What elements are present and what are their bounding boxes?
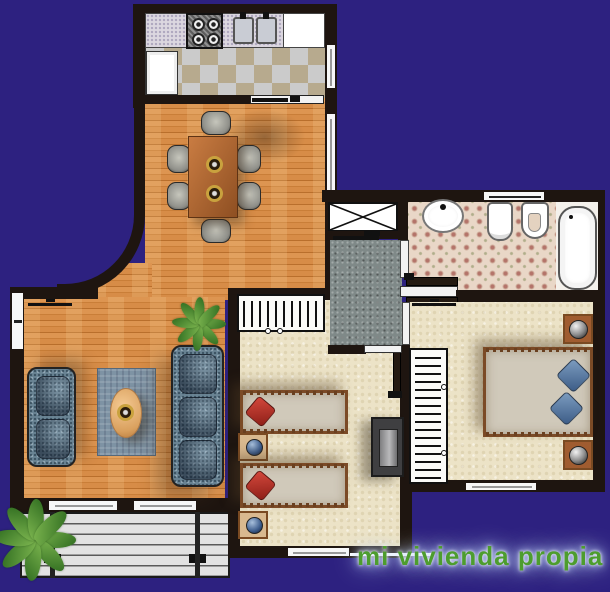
bathroom-window bbox=[483, 191, 545, 201]
stove bbox=[186, 13, 223, 49]
kitchen-sink-basin bbox=[256, 17, 277, 44]
plate-icon bbox=[206, 156, 223, 173]
radiator-tick bbox=[46, 299, 55, 302]
nightstand bbox=[563, 440, 593, 470]
nightstand bbox=[238, 433, 268, 461]
small-bedroom-wardrobe bbox=[237, 294, 325, 332]
burner-icon bbox=[192, 33, 205, 46]
single-bed bbox=[240, 390, 348, 434]
railing-handle bbox=[200, 554, 206, 563]
sofa-cushion bbox=[36, 376, 70, 416]
dining-chair bbox=[237, 145, 261, 173]
duct-closet bbox=[328, 202, 398, 232]
plate-icon bbox=[206, 185, 223, 202]
lamp-icon bbox=[246, 517, 263, 534]
railing-post bbox=[195, 512, 200, 578]
door-handle bbox=[404, 273, 414, 280]
wardrobe-shelves bbox=[415, 355, 441, 479]
bathtub bbox=[558, 206, 597, 290]
kitchen-bottom-wall bbox=[133, 95, 251, 104]
wardrobe-knob bbox=[441, 450, 447, 456]
dining-chair bbox=[201, 111, 231, 135]
radiator-tick bbox=[430, 299, 439, 302]
x-cross-icon bbox=[330, 204, 396, 230]
coffee-table bbox=[110, 388, 142, 438]
bidet-bowl bbox=[528, 213, 541, 232]
hall-floor bbox=[330, 240, 402, 347]
nightstand bbox=[563, 314, 593, 344]
three-seat-sofa bbox=[171, 345, 224, 487]
sofa-cushion bbox=[179, 440, 217, 480]
single-bed bbox=[240, 463, 348, 508]
dining-chair bbox=[201, 219, 231, 243]
centerpiece-icon bbox=[117, 404, 134, 421]
red-pillow bbox=[244, 395, 276, 427]
burner-icon bbox=[192, 18, 205, 31]
tv-cabinet bbox=[371, 417, 404, 477]
kitchen-window bbox=[326, 44, 336, 89]
railing-handle bbox=[189, 554, 195, 563]
balcony-plant bbox=[0, 496, 70, 568]
radiator-mark bbox=[412, 303, 456, 306]
doorway-threshold bbox=[400, 286, 458, 297]
sofa-cushion bbox=[36, 419, 70, 459]
duct-right-wall bbox=[398, 202, 408, 240]
watermark-text: mi vivienda propia bbox=[357, 541, 603, 572]
dining-chair bbox=[237, 182, 261, 210]
toilet bbox=[487, 202, 513, 241]
small-bedroom-door bbox=[393, 347, 401, 397]
living-plant bbox=[176, 296, 222, 342]
kitchen-sink-basin bbox=[233, 17, 254, 44]
radiator-mark bbox=[28, 303, 72, 306]
wardrobe-knob bbox=[441, 384, 447, 390]
kitchen-left-wall bbox=[133, 4, 145, 108]
lamp-icon bbox=[569, 320, 588, 339]
wardrobe-hangers bbox=[243, 301, 319, 327]
kitchen-door-handle bbox=[290, 96, 300, 102]
tv-icon bbox=[379, 429, 398, 467]
wardrobe-knob bbox=[265, 328, 271, 334]
master-doorway bbox=[402, 302, 410, 345]
entry-door-handle bbox=[364, 230, 380, 236]
sofa-cushion bbox=[179, 397, 217, 437]
faucet-icon bbox=[263, 12, 269, 19]
two-seat-sofa bbox=[27, 367, 76, 467]
lamp-icon bbox=[246, 439, 263, 456]
washbasin-faucet-icon bbox=[440, 204, 446, 210]
kitchen-door-leaf bbox=[252, 98, 288, 102]
living-side-window bbox=[11, 292, 24, 350]
faucet-icon bbox=[240, 12, 246, 19]
dining-window bbox=[326, 113, 336, 201]
blue-pillow bbox=[549, 391, 584, 426]
floor-plan: mi vivienda propia bbox=[0, 0, 610, 592]
burner-icon bbox=[207, 18, 220, 31]
master-wardrobe bbox=[409, 348, 448, 484]
dining-table bbox=[188, 136, 238, 218]
burner-icon bbox=[207, 33, 220, 46]
hall-threshold bbox=[364, 345, 402, 353]
kitchen-cabinet bbox=[283, 13, 325, 48]
lamp-icon bbox=[569, 446, 588, 465]
hall-bottom-wall bbox=[328, 345, 366, 354]
refrigerator bbox=[146, 51, 178, 95]
master-window bbox=[465, 482, 537, 491]
double-bed bbox=[483, 347, 593, 437]
wing-top-wall bbox=[322, 190, 605, 202]
sofa-cushion bbox=[179, 354, 217, 394]
nightstand bbox=[238, 511, 268, 539]
small-bedroom-window bbox=[287, 547, 350, 557]
blue-pillow bbox=[556, 358, 591, 393]
wardrobe-knob bbox=[277, 328, 283, 334]
bidet bbox=[521, 202, 549, 239]
door-handle bbox=[388, 391, 402, 398]
bathtub-drain-icon bbox=[569, 215, 573, 219]
balcony-door-window bbox=[133, 500, 197, 511]
bathroom-bottom-wall bbox=[456, 290, 605, 302]
red-pillow bbox=[244, 469, 276, 501]
